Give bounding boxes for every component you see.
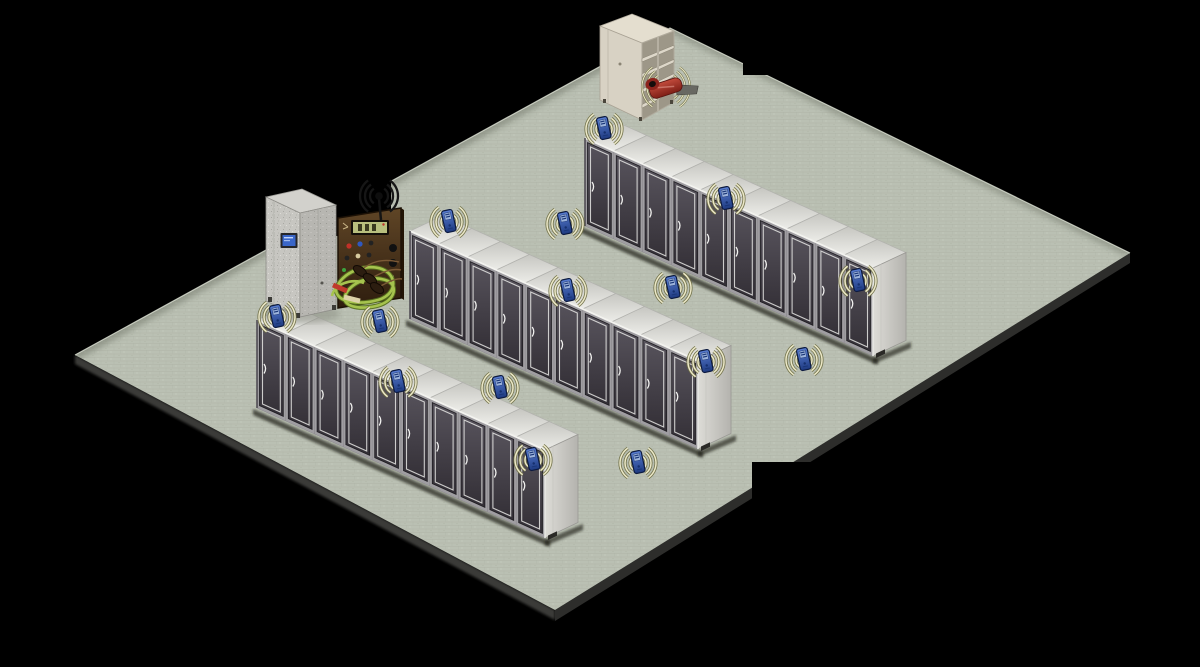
power-enclosure <box>260 189 340 323</box>
isometric-scene <box>0 0 1200 667</box>
storage-cabinet <box>600 14 674 121</box>
redacted-label <box>23 118 300 155</box>
datacenter-diagram <box>0 0 1200 667</box>
redacted-label <box>308 624 1116 654</box>
cabinet-handle <box>619 63 622 66</box>
antenna-tip <box>375 192 383 200</box>
rack-end-panel <box>873 253 906 359</box>
redacted-label <box>743 18 1103 75</box>
redacted-label <box>1126 624 1142 653</box>
redacted-label <box>752 462 1070 520</box>
